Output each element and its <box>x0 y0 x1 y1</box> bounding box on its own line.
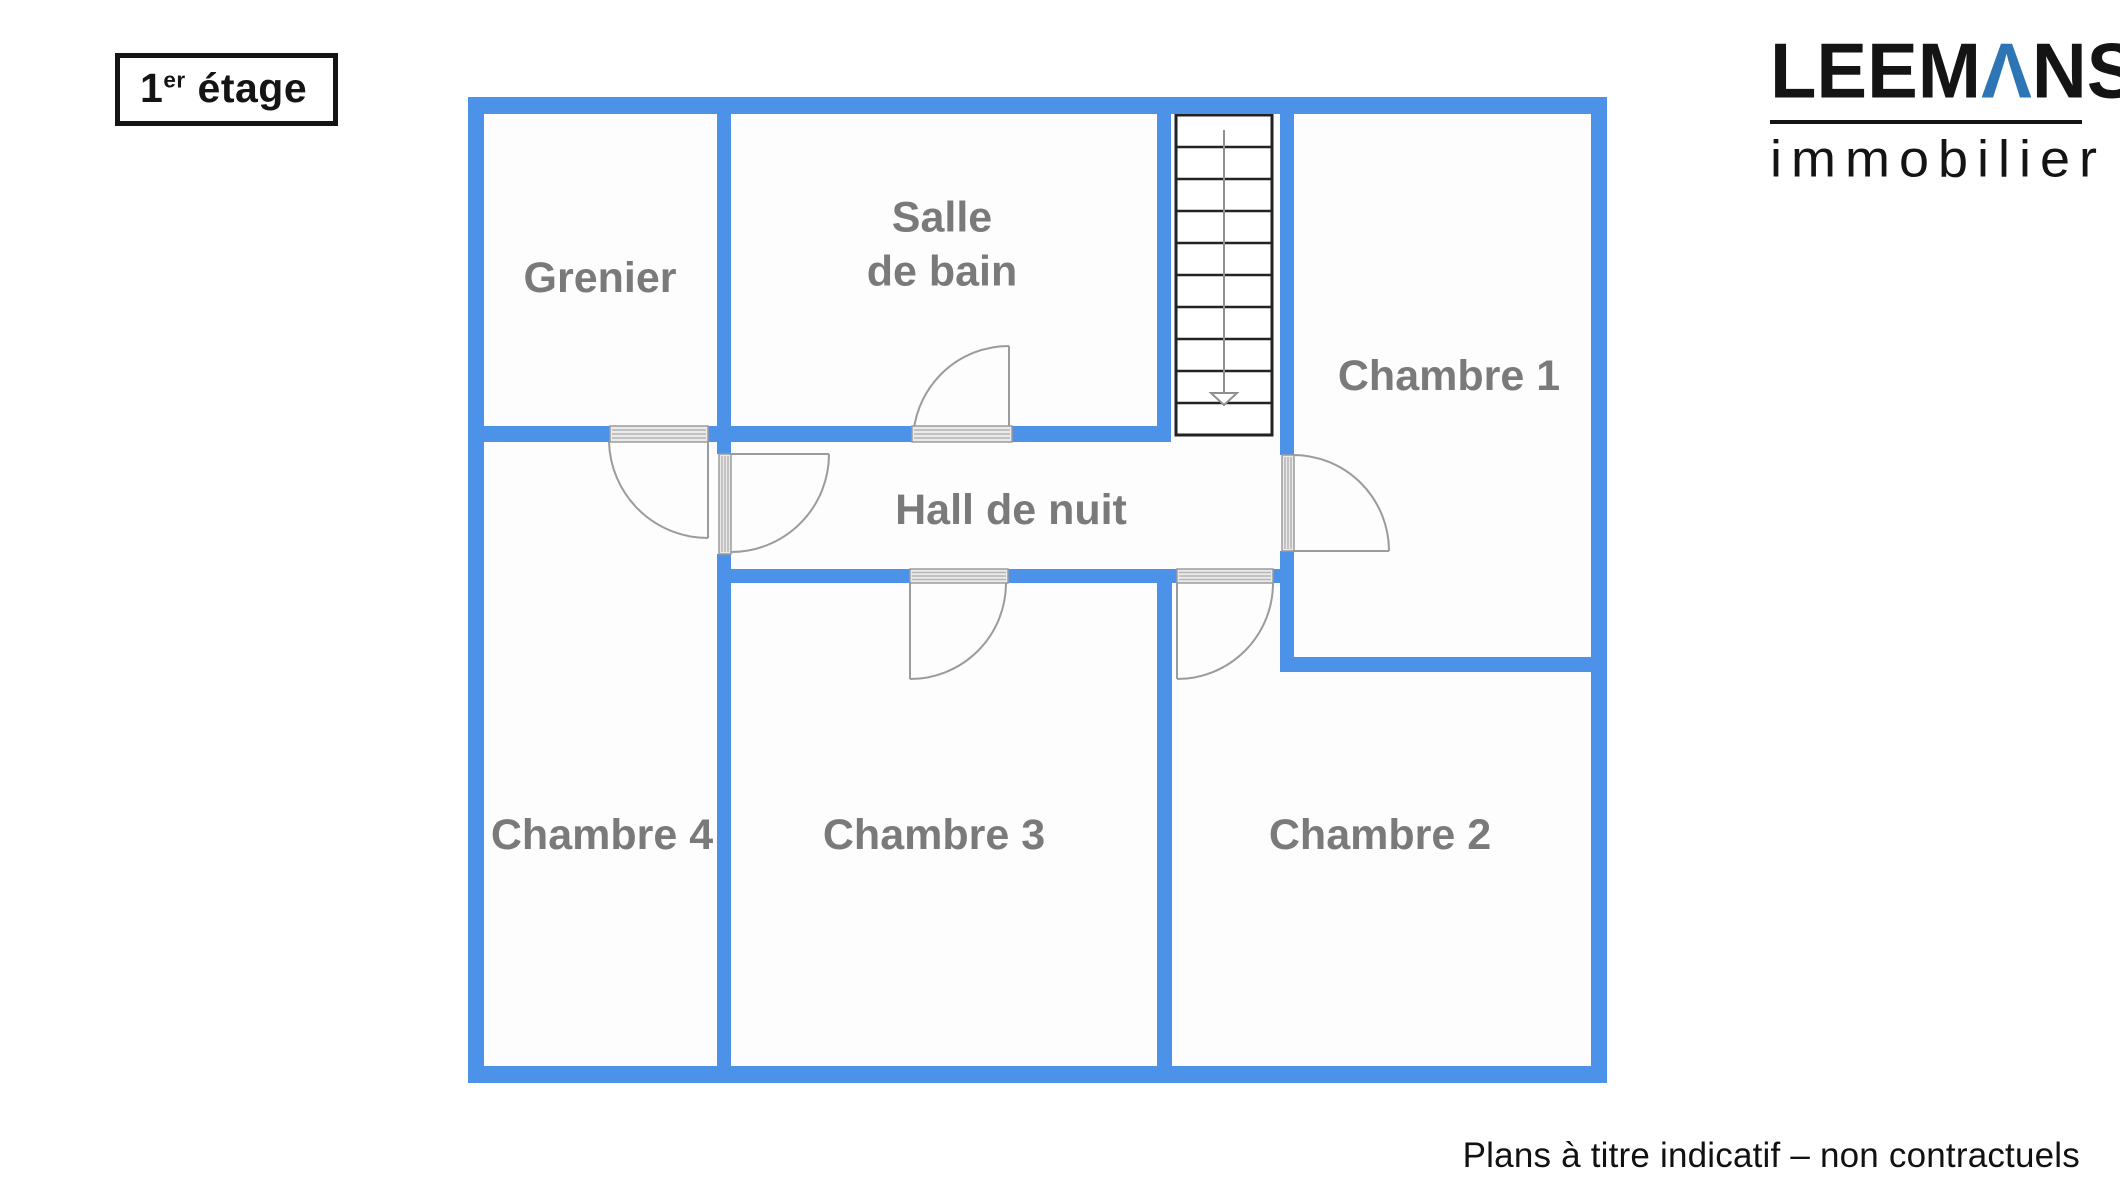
room-label-grenier: Grenier <box>524 252 677 306</box>
wall-hall-bottom-left <box>731 569 910 583</box>
room-label-hall-de-nuit: Hall de nuit <box>895 484 1127 538</box>
wall-ch4-ch3-lower <box>717 554 731 1066</box>
room-label-chambre-3: Chambre 3 <box>823 809 1045 863</box>
wall-outer-top <box>468 97 1607 114</box>
room-label-chambre-1: Chambre 1 <box>1338 350 1560 404</box>
plan-disclaimer: Plans à titre indicatif – non contractue… <box>1463 1136 2080 1176</box>
wall-hall-bottom-mid <box>1008 569 1177 583</box>
wall-outer-right <box>1591 97 1607 1083</box>
wall-ch1-left-upper <box>1280 114 1294 455</box>
room-label-chambre-2: Chambre 2 <box>1269 809 1491 863</box>
wall-ch1-left-lower <box>1280 551 1294 672</box>
wall-ch1-ch2-divider <box>1280 657 1607 672</box>
wall-hall-top-right <box>1012 426 1157 442</box>
wall-grenier-sdb-divider <box>717 114 731 426</box>
wall-hall-top-left <box>484 426 610 442</box>
wall-outer-bottom <box>468 1066 1607 1083</box>
wall-ch4-ch3-stub <box>717 442 731 454</box>
plan-background <box>468 97 1607 1083</box>
floorplan-drawing <box>0 0 2120 1200</box>
wall-ch3-ch2-divider <box>1157 583 1172 1066</box>
room-label-chambre-4: Chambre 4 <box>491 809 713 863</box>
wall-sdb-stairs-divider <box>1157 114 1171 442</box>
room-label-salle-de-bain: Salle de bain <box>867 191 1018 299</box>
floorplan-page: 1er étage LEEMΛNS immobilier GrenierSall… <box>0 0 2120 1200</box>
wall-outer-left <box>468 97 484 1083</box>
wall-hall-top-mid <box>708 426 912 442</box>
